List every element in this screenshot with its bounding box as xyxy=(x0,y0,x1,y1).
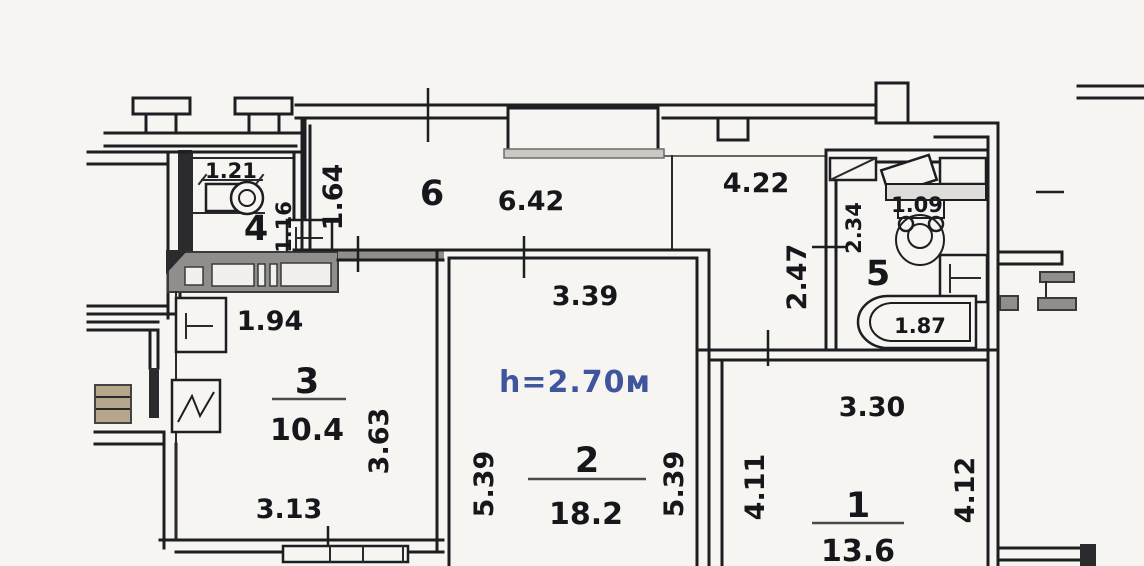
bathtub-length: 1.87 xyxy=(894,314,946,338)
room-3-height: 3.63 xyxy=(364,408,395,475)
kitchen-sink-icon xyxy=(176,298,226,352)
room-2-area: 18.2 xyxy=(549,497,623,532)
lobby-block xyxy=(95,385,131,423)
room-1-height-right: 4.12 xyxy=(950,457,981,524)
room-2-top-dim: 3.39 xyxy=(552,281,619,312)
ceiling-height-label: h=2.70м xyxy=(499,365,651,400)
room-3-bottom-dim: 3.13 xyxy=(256,494,323,525)
room-4-number: 4 xyxy=(244,209,268,249)
wall-pilaster xyxy=(718,118,748,140)
room-6-number: 6 xyxy=(420,174,444,214)
labels: 6 6.42 1.64 1.21 1.16 4 4.22 2.47 2.34 5… xyxy=(205,159,981,566)
room-2-height-right: 5.39 xyxy=(659,451,690,518)
room-6-width: 1.64 xyxy=(318,164,349,231)
room-1-number: 1 xyxy=(846,486,870,526)
room-2-height-left: 5.39 xyxy=(469,451,500,518)
room-5-number: 5 xyxy=(866,254,890,294)
built-in-closet xyxy=(504,108,664,158)
hall-height: 2.47 xyxy=(782,244,813,311)
room-3-top-dim: 1.94 xyxy=(237,306,304,337)
vent-shaft xyxy=(166,250,444,292)
room-6-length: 6.42 xyxy=(498,186,565,217)
hall-length: 4.22 xyxy=(723,168,790,199)
corridor-and-room-1 xyxy=(697,330,998,566)
room-5-height: 2.34 xyxy=(842,202,866,254)
wall-pilaster xyxy=(876,83,908,123)
room-1-top-dim: 3.30 xyxy=(839,392,906,423)
right-exterior-wall xyxy=(988,123,1096,566)
room-1-height-left: 4.11 xyxy=(740,454,771,521)
room-2-number: 2 xyxy=(575,441,599,481)
wall-pilaster xyxy=(133,98,190,114)
room-3-number: 3 xyxy=(295,362,319,402)
room-4-height: 1.16 xyxy=(272,201,296,253)
room-1-area: 13.6 xyxy=(821,534,895,566)
apartment-floor-plan: 1.09 6 6.42 1.64 1.21 1.16 4 4.22 2.47 xyxy=(0,0,1144,566)
room-4-width: 1.21 xyxy=(205,159,257,183)
kitchen-window xyxy=(283,546,408,562)
floor-plan-page: 1.09 6 6.42 1.64 1.21 1.16 4 4.22 2.47 xyxy=(0,0,1144,566)
room-3-area: 10.4 xyxy=(270,413,344,448)
wall-pilaster xyxy=(235,98,292,114)
stairwell-lobby-walls xyxy=(88,152,180,548)
stove-icon xyxy=(172,380,220,432)
